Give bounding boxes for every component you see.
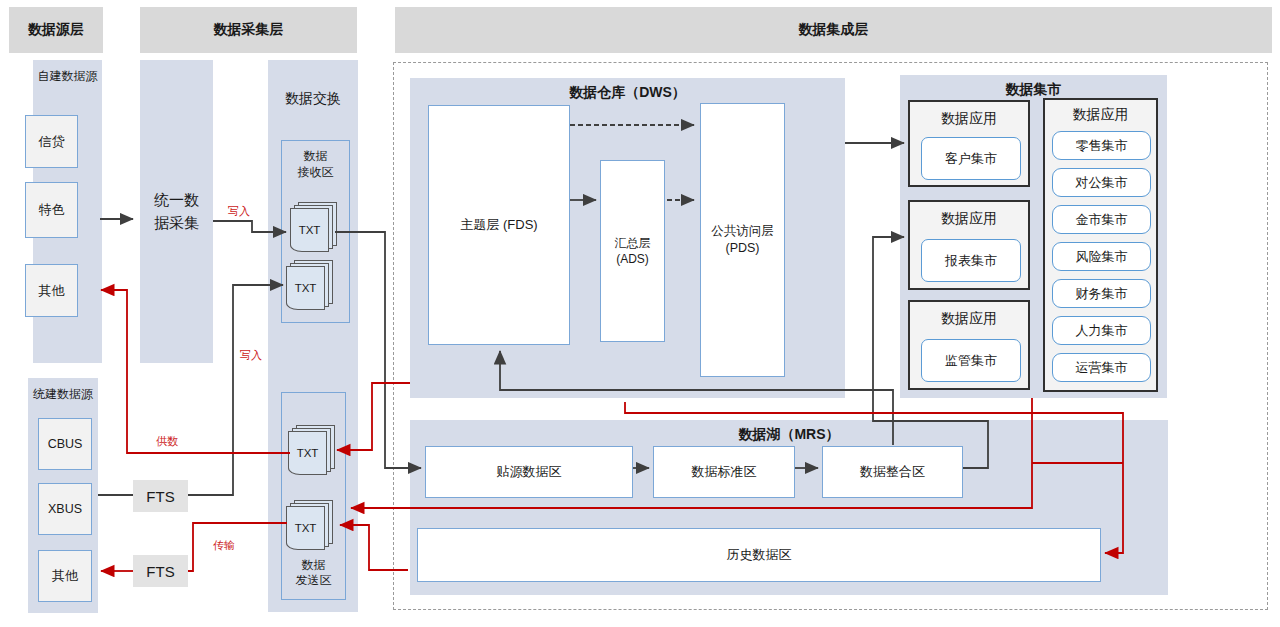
unified-collection-line1: 统一数 [151,189,203,212]
layer-header-collection: 数据采集层 [140,7,357,53]
flow-label-write-1: 写入 [228,204,250,219]
mart-item-hr: 人力集市 [1052,316,1151,345]
fds-box: 主题层 (FDS) [428,105,570,345]
pds-box: 公共访问层 (PDS) [700,103,785,377]
source-box-credit: 信贷 [25,115,78,168]
ads-line1: 汇总层 [615,235,651,251]
flow-label-transfer: 传输 [213,538,235,553]
ads-label: 汇总层 (ADS) [615,235,651,267]
mart-title: 数据集市 [900,81,1167,99]
app-box-customer: 数据应用 客户集市 [908,100,1030,187]
send-zone-box: 数据 发送区 [281,392,346,600]
app-box-right: 数据应用 零售集市 对公集市 金市集市 风险集市 财务集市 人力集市 运营集市 [1043,98,1158,392]
send-zone-line1: 数据 [282,558,345,574]
mart-item-financial-market: 金市集市 [1052,205,1151,234]
send-zone-line2: 发送区 [282,573,345,589]
mart-item-customer: 客户集市 [921,137,1021,180]
mrs-zone-integration: 数据整合区 [822,446,963,498]
mart-item-finance: 财务集市 [1052,279,1151,308]
app-box-regulatory: 数据应用 监管集市 [908,300,1030,390]
source-box-special: 特色 [25,182,78,238]
app-label: 数据应用 [910,110,1028,128]
app-label: 数据应用 [1045,106,1156,124]
mrs-zone-standard: 数据标准区 [653,446,795,498]
self-built-sources-title: 自建数据源 [33,68,102,85]
mart-item-operations: 运营集市 [1052,353,1151,382]
pds-line2: (PDS) [711,240,774,257]
mrs-zone-history: 历史数据区 [417,528,1101,582]
receive-zone-label: 数据 接收区 [282,149,349,180]
mrs-zone-source: 贴源数据区 [425,446,633,498]
app-box-report: 数据应用 报表集市 [908,200,1030,290]
fts-box-2: FTS [133,555,188,587]
txt-file-icon: TXT [286,506,325,550]
ads-box: 汇总层 (ADS) [600,160,665,342]
app-label: 数据应用 [910,210,1028,228]
receive-zone-line2: 接收区 [282,165,349,181]
txt-file-icon: TXT [286,266,325,310]
mrs-title: 数据湖（MRS） [410,426,1168,444]
unified-collection-line2: 据采集 [151,212,203,235]
app-label: 数据应用 [910,310,1028,328]
mart-item-corporate: 对公集市 [1052,168,1151,197]
pds-line1: 公共访问层 [711,223,774,240]
txt-file-icon: TXT [288,431,327,475]
pds-label: 公共访问层 (PDS) [711,223,774,257]
unified-sources-title: 统建数据源 [28,386,98,403]
receive-zone-line1: 数据 [282,149,349,165]
data-exchange-title: 数据交换 [268,90,358,108]
source-box-xbus: XBUS [38,483,92,535]
dws-title: 数据仓库（DWS） [410,84,845,102]
receive-txt-stack-2: TXT [287,260,333,312]
flow-label-write-2: 写入 [240,348,262,363]
layer-header-source: 数据源层 [9,7,103,53]
unified-collection-label: 统一数 据采集 [151,189,203,234]
architecture-diagram: 数据源层 数据采集层 数据集成层 自建数据源 信贷 特色 其他 统建数据源 CB… [0,0,1280,627]
panel-unified-collection: 统一数 据采集 [140,60,213,363]
mart-item-risk: 风险集市 [1052,242,1151,271]
mart-item-retail: 零售集市 [1052,131,1151,160]
layer-header-integration: 数据集成层 [395,7,1272,53]
mart-item-regulatory: 监管集市 [921,339,1021,382]
source-box-cbus: CBUS [38,418,92,470]
source-box-other-self: 其他 [25,264,78,317]
fts-box-1: FTS [133,480,188,512]
source-box-other-unified: 其他 [38,550,92,602]
receive-txt-stack-1: TXT [291,202,337,254]
send-txt-stack-2: TXT [287,500,333,552]
send-txt-stack-1: TXT [289,425,335,477]
txt-file-icon: TXT [290,208,329,252]
ads-line2: (ADS) [615,251,651,267]
mart-item-report: 报表集市 [921,239,1021,282]
send-zone-label: 数据 发送区 [282,558,345,589]
flow-label-supply: 供数 [156,434,178,449]
